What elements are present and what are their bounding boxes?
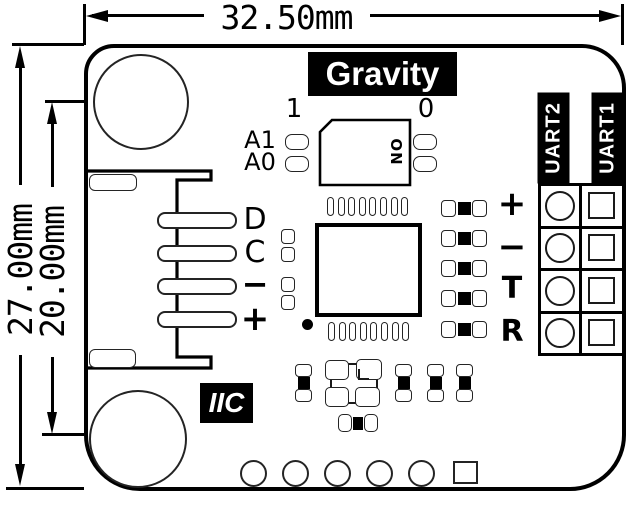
passive-3pad [441,260,487,277]
uart-grid-divider-horizontal [541,268,622,271]
passive-2pad [281,229,295,262]
smd-pad [359,197,366,216]
component-body [458,262,471,275]
brand-badge: Gravity [308,52,457,96]
smd-pad [472,321,487,338]
smd-pad [395,389,412,402]
component-body [459,377,471,389]
smd-pad [338,414,352,432]
component-body [298,377,310,389]
connector-pin-plus-label: + [238,302,272,336]
switch-pad [413,134,437,150]
crystal-pad-notch [358,369,369,380]
smd-pad [427,364,444,377]
smd-pad [472,260,487,277]
iic-badge: IIC [200,383,253,423]
smd-pad [401,197,408,216]
connector-pin-pad-c [157,245,237,262]
ic-pad-row-bottom [328,322,409,341]
smd-pad [364,414,378,432]
connector-latch-bottom [89,349,136,368]
connector-pin-minus-label: − [240,268,270,300]
ic-pad-row-top [327,197,408,216]
component-body [458,232,471,245]
connector-pin-pad-plus [157,311,237,328]
pcb-dimension-drawing: 32.50mm 27.00mm 20.00mm Gravity 1 0 A1 A… [0,0,632,508]
smd-pad [427,389,444,402]
component-body [430,377,442,389]
component-body [458,292,471,305]
connector-pin-c-label: C [240,238,270,268]
brand-label: Gravity [326,55,440,93]
uart2-terminal-hole [545,318,575,348]
uart1-terminal-pad [588,277,615,304]
switch-pad [285,156,309,172]
smd-pad [338,197,345,216]
smd-pad [380,197,387,216]
uart-pin-r-label: R [497,317,527,347]
switch-pad [413,156,437,172]
passive-3pad [441,200,487,217]
passive-2pad [281,277,295,310]
smd-pad [441,230,456,247]
smd-pad [456,364,473,377]
passive-3pad-vertical [295,364,312,402]
crystal-pad [355,387,380,407]
passive-3pad-vertical [427,364,444,402]
component-body [398,377,410,389]
passive-3pad [338,414,378,432]
smd-pad [328,322,335,341]
smd-pad [339,322,346,341]
connector-latch-top [89,174,137,191]
crystal-pad [325,360,349,380]
uart-pin-plus-label: + [495,187,529,221]
uart1-header-badge: UART1 [592,93,624,184]
main-ic-body [315,223,422,317]
smd-pad [441,290,456,307]
switch-a0-label: A0 [243,150,277,174]
uart2-header-badge: UART2 [538,93,570,184]
smd-pad [392,322,399,341]
bottom-pad-hole [408,460,435,487]
uart2-terminal-hole [545,191,575,221]
smd-pad [369,197,376,216]
iic-label: IIC [209,387,245,419]
connector-pin-pad-d [157,212,237,229]
smd-pad [281,247,295,262]
smd-pad [441,200,456,217]
smd-pad [381,322,388,341]
smd-pad [391,197,398,216]
smd-pad [441,260,456,277]
uart2-terminal-hole [545,276,575,306]
bottom-pad-hole [366,460,393,487]
bottom-pad-hole [240,460,267,487]
smd-pad [348,197,355,216]
uart1-terminal-pad [588,234,615,261]
smd-pad [327,197,334,216]
component-body [458,323,471,336]
passive-3pad-vertical [395,364,412,402]
component-body [353,417,363,430]
smd-pad [402,322,409,341]
uart-pin-minus-label: − [495,230,529,264]
smd-pad [349,322,356,341]
smd-pad [281,277,295,292]
smd-pad [472,290,487,307]
smd-pad [281,295,295,310]
uart-grid-divider-horizontal [541,226,622,229]
passive-3pad-vertical [456,364,473,402]
switch-index-0: 0 [416,96,436,122]
smd-pad [472,230,487,247]
passive-3pad [441,321,487,338]
uart-pin-t-label: T [497,274,527,304]
gravity-connector-outline [88,171,211,368]
smd-pad [295,389,312,402]
smd-pad [370,322,377,341]
smd-pad [281,229,295,244]
bottom-pad-square [453,461,478,484]
uart1-terminal-pad [588,319,615,346]
connector-pin-pad-minus [157,278,237,295]
component-body [458,202,471,215]
uart2-terminal-hole [545,233,575,263]
bottom-pad-hole [282,460,309,487]
switch-pad [285,134,309,150]
uart-grid-divider-horizontal [541,311,622,314]
smd-pad [395,364,412,377]
passive-3pad [441,290,487,307]
connector-pin-d-label: D [240,205,270,235]
smd-pad [441,321,456,338]
passive-3pad [441,230,487,247]
uart1-header-label: UART1 [596,102,619,174]
switch-index-1: 1 [284,96,304,122]
smd-pad [295,364,312,377]
uart1-terminal-pad [588,192,615,219]
smd-pad [456,389,473,402]
ic-pin1-dot [302,319,313,330]
smd-pad [360,322,367,341]
uart2-header-label: UART2 [542,102,565,174]
bottom-pad-hole [324,460,351,487]
crystal-pad [325,387,349,407]
switch-on-label: ON [387,134,405,170]
smd-pad [472,200,487,217]
